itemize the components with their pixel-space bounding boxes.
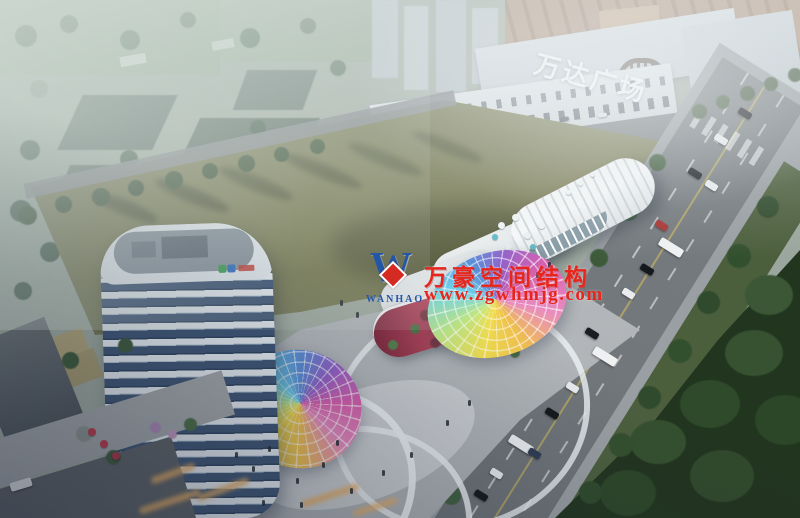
umbrella xyxy=(112,452,120,460)
tree xyxy=(60,15,78,33)
tree xyxy=(30,80,48,98)
tower-logo-green xyxy=(218,265,226,273)
umbrella xyxy=(512,214,519,221)
pedestrian xyxy=(252,466,255,472)
tree xyxy=(330,60,346,76)
tower-logo xyxy=(218,264,256,274)
pedestrian xyxy=(350,488,353,494)
tree xyxy=(725,330,783,376)
tree xyxy=(118,338,133,353)
terrace-plant xyxy=(410,324,420,334)
tree xyxy=(274,147,289,162)
umbrella xyxy=(88,428,96,436)
watermark-url: www.zgwhmjg.com xyxy=(424,284,604,306)
pedestrian xyxy=(296,478,299,484)
tree-shadow xyxy=(410,126,484,166)
flowering-shrub xyxy=(168,430,177,439)
umbrella xyxy=(566,190,571,195)
tree xyxy=(692,104,707,119)
tree xyxy=(764,77,778,91)
tree xyxy=(697,291,720,314)
tree xyxy=(745,275,793,315)
tree xyxy=(600,470,656,516)
tree xyxy=(165,171,183,189)
tree xyxy=(18,206,37,225)
pedestrian xyxy=(268,446,271,452)
tree xyxy=(668,339,692,363)
umbrella xyxy=(538,222,545,229)
tree xyxy=(20,140,40,160)
tree-shadow xyxy=(280,149,364,194)
pedestrian xyxy=(356,312,359,318)
tower-logo-red xyxy=(238,265,254,272)
umbrella xyxy=(524,232,531,239)
umbrella xyxy=(100,440,108,448)
pedestrian xyxy=(382,470,385,476)
umbrella xyxy=(498,222,505,229)
tower-roof-equipment xyxy=(131,241,156,258)
tree xyxy=(15,25,37,47)
pedestrian xyxy=(262,500,265,506)
tree xyxy=(202,163,218,179)
tree xyxy=(180,12,196,28)
umbrella xyxy=(590,172,595,177)
tree xyxy=(757,196,779,218)
tree xyxy=(55,196,72,213)
tree xyxy=(609,433,633,457)
tree-shadow xyxy=(216,162,296,206)
pedestrian xyxy=(340,300,343,306)
tree xyxy=(62,352,79,369)
tree xyxy=(716,95,730,109)
watermark-logo: W WANHAO xyxy=(366,250,424,308)
tower-roof-equipment xyxy=(161,235,208,259)
tree xyxy=(14,282,32,300)
tower-logo-blue xyxy=(227,264,235,272)
tree xyxy=(310,139,325,154)
tree xyxy=(238,155,255,172)
pedestrian xyxy=(235,452,238,458)
tree xyxy=(649,154,666,171)
tree xyxy=(240,28,260,48)
tree xyxy=(740,86,755,101)
pedestrian xyxy=(446,420,449,426)
tree xyxy=(727,244,751,268)
tree xyxy=(638,386,661,409)
tree-shadow xyxy=(345,138,424,181)
watermark-logo-text: WANHAO xyxy=(366,294,424,305)
pedestrian xyxy=(468,400,471,406)
terrace-plant xyxy=(388,340,398,350)
pedestrian xyxy=(410,452,413,458)
flowering-shrub xyxy=(150,422,161,433)
tree xyxy=(300,18,316,34)
pedestrian xyxy=(300,502,303,508)
tree xyxy=(680,380,740,428)
low-rise-building xyxy=(233,70,318,110)
umbrella xyxy=(492,234,498,240)
low-rise-building xyxy=(57,95,178,150)
pedestrian xyxy=(322,462,325,468)
umbrella xyxy=(578,181,583,186)
aerial-rendering-scene: 万达广场 xyxy=(0,0,800,518)
pedestrian xyxy=(336,440,339,446)
tree xyxy=(788,68,800,82)
hedge xyxy=(184,418,197,431)
tree xyxy=(120,30,140,50)
tree xyxy=(92,188,110,206)
tree xyxy=(690,450,754,502)
tree xyxy=(128,180,144,196)
tree xyxy=(579,481,602,504)
tree xyxy=(630,420,686,464)
